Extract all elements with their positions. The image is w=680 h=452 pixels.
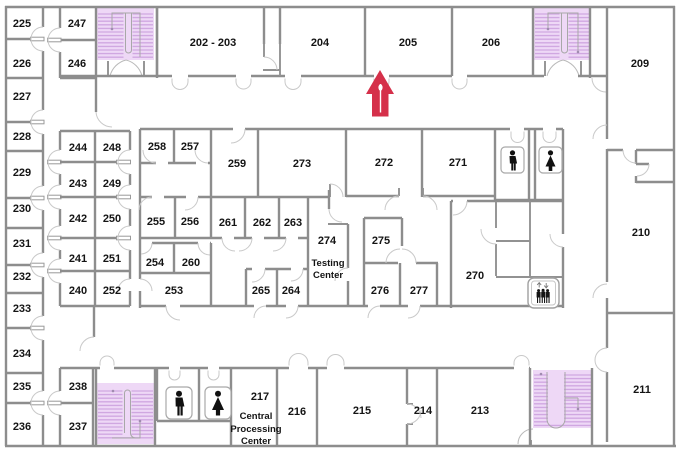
svg-text:202 - 203: 202 - 203 (190, 37, 236, 49)
svg-text:211: 211 (633, 384, 651, 396)
svg-text:257: 257 (181, 141, 199, 153)
svg-text:240: 240 (69, 285, 87, 297)
svg-text:251: 251 (103, 253, 121, 265)
svg-text:225: 225 (13, 18, 31, 30)
svg-text:238: 238 (69, 381, 87, 393)
svg-text:247: 247 (68, 18, 86, 30)
svg-text:259: 259 (228, 158, 246, 170)
svg-text:271: 271 (449, 157, 467, 169)
svg-text:Center: Center (313, 270, 343, 281)
svg-text:206: 206 (482, 37, 500, 49)
svg-text:217: 217 (251, 391, 269, 403)
svg-text:274: 274 (318, 235, 337, 247)
svg-text:214: 214 (414, 405, 433, 417)
svg-text:205: 205 (399, 37, 417, 49)
svg-text:272: 272 (375, 157, 393, 169)
svg-text:243: 243 (69, 178, 87, 190)
svg-text:256: 256 (181, 216, 199, 228)
svg-text:237: 237 (69, 421, 87, 433)
svg-text:255: 255 (147, 216, 165, 228)
svg-text:234: 234 (13, 348, 32, 360)
svg-text:209: 209 (631, 58, 649, 70)
svg-text:246: 246 (68, 58, 86, 70)
svg-text:227: 227 (13, 91, 31, 103)
svg-text:264: 264 (282, 285, 301, 297)
svg-text:276: 276 (371, 285, 389, 297)
svg-text:226: 226 (13, 58, 31, 70)
svg-text:273: 273 (293, 158, 311, 170)
svg-text:Central: Central (240, 411, 273, 422)
svg-text:Testing: Testing (311, 258, 344, 269)
svg-text:210: 210 (632, 227, 650, 239)
svg-text:215: 215 (353, 405, 371, 417)
svg-text:233: 233 (13, 303, 31, 315)
svg-text:260: 260 (182, 257, 200, 269)
svg-text:204: 204 (311, 37, 330, 49)
svg-text:261: 261 (219, 217, 237, 229)
svg-text:242: 242 (69, 213, 87, 225)
svg-text:252: 252 (103, 285, 121, 297)
svg-text:228: 228 (13, 131, 31, 143)
svg-text:229: 229 (13, 167, 31, 179)
svg-text:265: 265 (252, 285, 270, 297)
svg-text:Processing: Processing (230, 424, 281, 435)
svg-text:258: 258 (148, 141, 166, 153)
svg-text:262: 262 (253, 217, 271, 229)
svg-text:270: 270 (466, 270, 484, 282)
svg-text:230: 230 (13, 203, 31, 215)
svg-text:253: 253 (165, 285, 183, 297)
svg-text:249: 249 (103, 178, 121, 190)
svg-text:250: 250 (103, 213, 121, 225)
svg-text:213: 213 (471, 405, 489, 417)
svg-text:216: 216 (288, 406, 306, 418)
svg-text:Center: Center (241, 436, 271, 447)
svg-text:241: 241 (69, 253, 87, 265)
svg-text:231: 231 (13, 238, 31, 250)
svg-text:248: 248 (103, 142, 121, 154)
svg-text:232: 232 (13, 271, 31, 283)
svg-text:244: 244 (69, 142, 88, 154)
svg-text:277: 277 (410, 285, 428, 297)
svg-text:263: 263 (284, 217, 302, 229)
svg-text:275: 275 (372, 235, 390, 247)
svg-text:236: 236 (13, 421, 31, 433)
svg-text:254: 254 (146, 257, 165, 269)
svg-text:235: 235 (13, 381, 31, 393)
